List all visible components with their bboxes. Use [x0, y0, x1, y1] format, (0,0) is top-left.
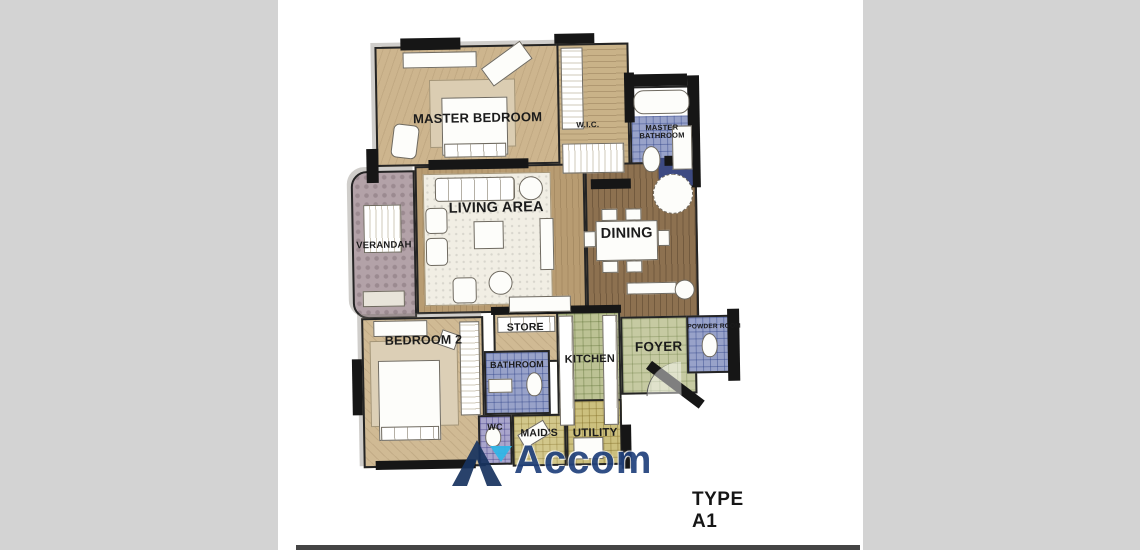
- dining-chair: [584, 231, 596, 247]
- kitchen-counter: [602, 315, 619, 425]
- wall-segment: [400, 37, 460, 50]
- wic-label: W.I.C.: [566, 121, 610, 131]
- toilet: [701, 333, 717, 357]
- master-bedroom-label: MASTER BEDROOM: [396, 110, 560, 127]
- verandah-mat: [363, 290, 405, 307]
- bottom-divider-bar: [296, 545, 860, 550]
- bathroom-sink: [488, 379, 512, 393]
- living-area-label: LIVING AREA: [441, 200, 551, 218]
- bathtub: [633, 89, 689, 114]
- sofa: [435, 177, 515, 202]
- verandah-label: VERANDAH: [348, 240, 420, 252]
- bathroom-label: BATHROOM: [486, 360, 548, 371]
- accom-watermark: Accom: [452, 438, 672, 490]
- wall-segment: [428, 158, 528, 170]
- wall-segment: [366, 149, 379, 183]
- dining-chair: [601, 209, 617, 221]
- accom-brand-text: Accom: [514, 438, 652, 483]
- dining-chair: [626, 260, 642, 272]
- master-bathroom-label: MASTER BATHROOM: [635, 123, 689, 140]
- foyer-label: FOYER: [628, 340, 690, 356]
- wall-segment: [727, 309, 740, 381]
- wardrobe: [560, 47, 583, 129]
- dining-chair: [625, 208, 641, 220]
- wall-segment: [554, 33, 594, 44]
- sideboard: [627, 282, 677, 295]
- wall-segment: [591, 179, 631, 190]
- powder-room-label: POWDER ROOM: [687, 323, 731, 331]
- left-gray-margin: [0, 0, 278, 550]
- kitchen-label: KITCHEN: [564, 353, 616, 366]
- bed-pillows: [381, 426, 439, 441]
- toilet: [526, 372, 542, 396]
- accom-logo-triangle-icon: [490, 446, 512, 462]
- hall-cabinet: [509, 296, 571, 313]
- wc-label: WC: [480, 423, 510, 433]
- dining-label: DINING: [598, 226, 656, 243]
- wall-segment: [352, 359, 363, 415]
- wall-segment: [629, 74, 687, 87]
- dining-chair: [602, 261, 618, 273]
- master-bed-pillows: [444, 143, 506, 158]
- tv-cabinet: [539, 218, 554, 270]
- dresser: [403, 51, 477, 68]
- store-label: STORE: [499, 322, 551, 334]
- floor-plan: MASTER BEDROOM W.I.C. MASTER BATHROOM LI…: [336, 26, 756, 475]
- dining-chair: [658, 230, 670, 246]
- wardrobe: [562, 143, 625, 174]
- stool: [452, 277, 476, 303]
- toilet: [642, 146, 660, 172]
- armchair: [426, 238, 448, 266]
- armchair: [390, 123, 420, 160]
- bedroom-2-label: BEDROOM 2: [377, 333, 469, 348]
- right-gray-margin: [863, 0, 1140, 550]
- coffee-table: [473, 221, 503, 250]
- plan-type-title: TYPE A1: [692, 489, 772, 533]
- kitchen-counter: [558, 316, 575, 426]
